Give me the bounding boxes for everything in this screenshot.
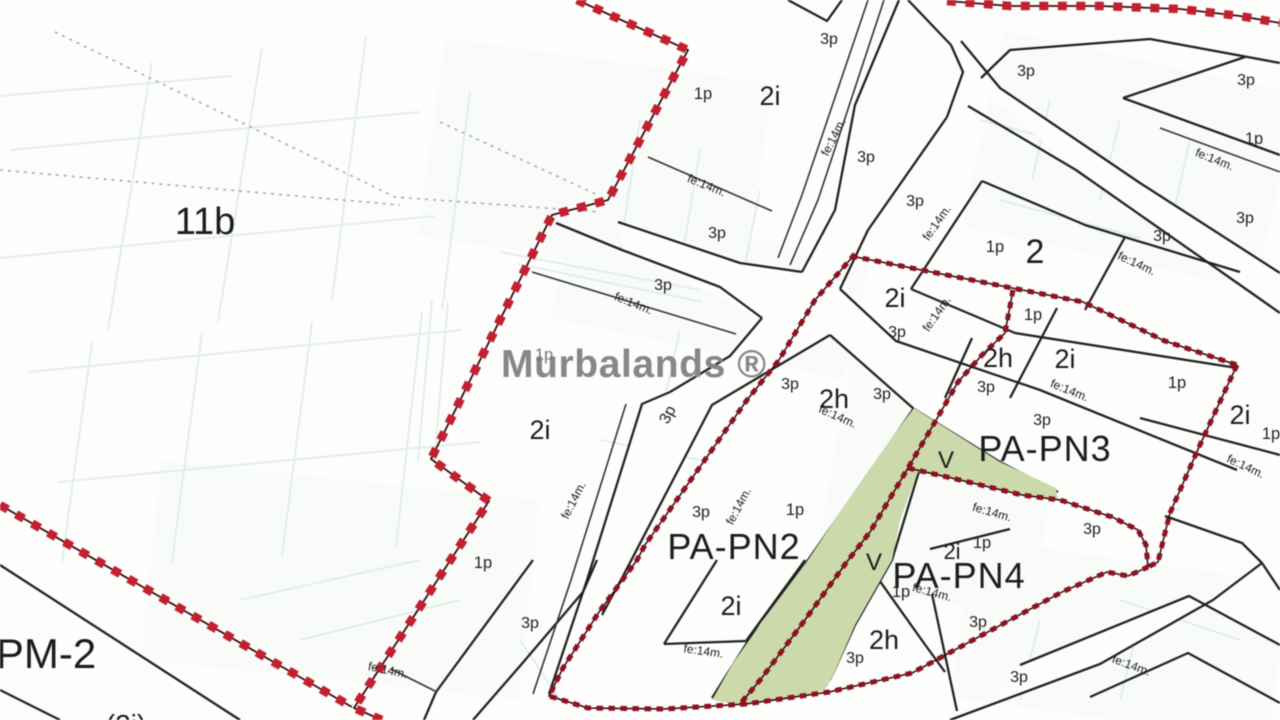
- svg-text:3p: 3p: [1033, 412, 1051, 429]
- svg-text:11b: 11b: [175, 201, 236, 243]
- svg-text:PM-2: PM-2: [0, 630, 96, 677]
- svg-text:3p: 3p: [888, 324, 906, 341]
- svg-text:3p: 3p: [1010, 669, 1028, 686]
- svg-text:3p: 3p: [857, 149, 875, 166]
- svg-text:1p: 1p: [694, 85, 712, 103]
- svg-text:1p: 1p: [986, 238, 1004, 256]
- svg-text:1p: 1p: [1024, 306, 1042, 324]
- svg-text:1p: 1p: [1262, 425, 1280, 443]
- svg-text:3p: 3p: [654, 277, 672, 294]
- svg-text:2i: 2i: [884, 283, 905, 313]
- svg-text:2i: 2i: [943, 539, 960, 564]
- svg-text:1p: 1p: [892, 583, 910, 601]
- svg-text:(2i): (2i): [106, 709, 146, 720]
- svg-text:V: V: [866, 549, 882, 576]
- svg-text:3p: 3p: [692, 504, 710, 521]
- svg-text:3p: 3p: [521, 615, 539, 632]
- svg-text:1p: 1p: [474, 554, 492, 572]
- svg-text:PA-PN3: PA-PN3: [978, 428, 1111, 469]
- svg-text:3p: 3p: [708, 225, 726, 242]
- svg-text:3p: 3p: [1236, 210, 1254, 227]
- svg-text:PA-PN2: PA-PN2: [667, 526, 800, 567]
- svg-text:2: 2: [1026, 233, 1045, 271]
- svg-text:2h: 2h: [983, 343, 1013, 373]
- svg-text:3p: 3p: [846, 650, 864, 667]
- svg-text:2i: 2i: [1229, 400, 1250, 430]
- svg-text:1p: 1p: [1168, 374, 1186, 392]
- svg-text:1p: 1p: [786, 501, 804, 519]
- svg-text:1p: 1p: [1245, 130, 1263, 148]
- svg-text:3p: 3p: [1083, 521, 1101, 538]
- svg-text:2h: 2h: [869, 625, 899, 655]
- svg-text:3p: 3p: [781, 376, 799, 393]
- svg-text:1p: 1p: [973, 534, 991, 552]
- svg-text:1p: 1p: [535, 346, 553, 364]
- svg-text:3p: 3p: [906, 193, 924, 210]
- svg-text:3p: 3p: [820, 31, 838, 48]
- svg-text:3p: 3p: [969, 614, 987, 631]
- svg-text:3p: 3p: [873, 386, 891, 403]
- svg-text:V: V: [938, 447, 954, 474]
- svg-text:2i: 2i: [1054, 344, 1075, 374]
- svg-text:2i: 2i: [720, 591, 741, 621]
- svg-text:2i: 2i: [759, 81, 780, 111]
- svg-text:3p: 3p: [1153, 228, 1171, 245]
- svg-text:3p: 3p: [1017, 63, 1035, 80]
- svg-text:2i: 2i: [529, 415, 550, 445]
- svg-text:3p: 3p: [1237, 72, 1255, 89]
- svg-text:3p: 3p: [977, 379, 995, 396]
